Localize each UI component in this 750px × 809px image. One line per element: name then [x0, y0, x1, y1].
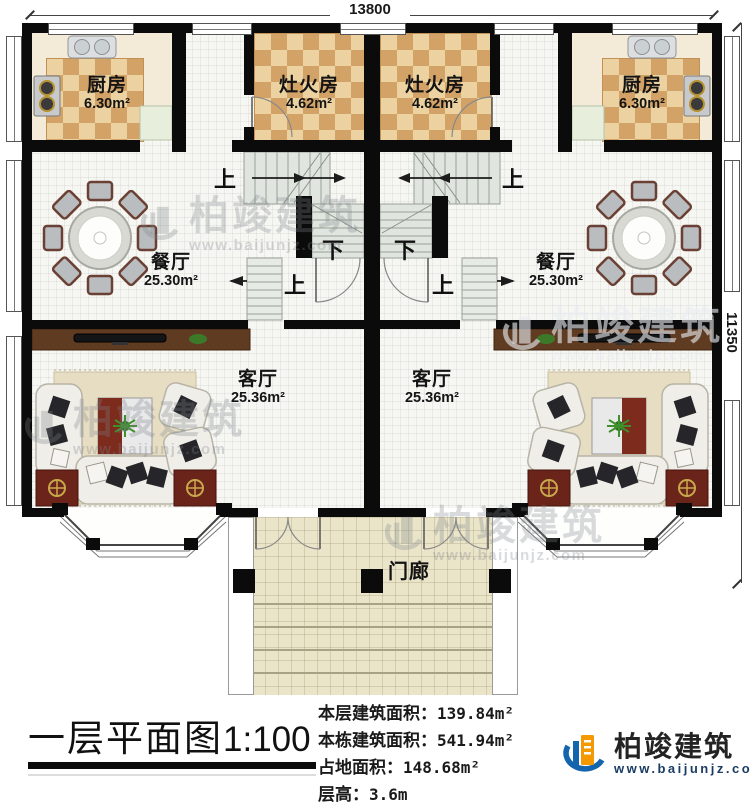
room-label-dining-left: 餐厅 25.30m²: [116, 253, 226, 290]
title-rule-light: [28, 774, 316, 776]
room-name: 餐厅: [501, 253, 611, 274]
room-area: 25.30m²: [116, 274, 226, 290]
room-name: 灶火房: [254, 76, 364, 97]
company-logo: 柏竣建筑 www.baijunjz.com: [560, 728, 750, 780]
room-label-stoveroom-right: 灶火房 4.62m²: [380, 76, 490, 113]
wall-segment: [380, 320, 460, 329]
wall-segment: [496, 320, 722, 329]
window-band: [48, 23, 134, 35]
company-name: 柏竣建筑: [614, 732, 750, 761]
title-block: 一层平面图1:100 本层建筑面积：139.84m² 本栋建筑面积：541.94…: [0, 700, 750, 809]
plan-stats: 本层建筑面积：139.84m² 本栋建筑面积：541.94m² 占地面积：148…: [318, 700, 514, 808]
room-label-living-right: 客厅 25.36m²: [377, 370, 487, 407]
stat-row: 本栋建筑面积：541.94m²: [318, 727, 514, 754]
stair-up-label: 上: [502, 162, 524, 194]
company-logo-text: 柏竣建筑 www.baijunjz.com: [614, 732, 750, 776]
room-area: 6.30m²: [587, 97, 697, 113]
wall-segment: [220, 508, 258, 517]
stat-value: 3.6m: [369, 785, 408, 804]
room-label-living-left: 客厅 25.36m²: [203, 370, 313, 407]
floor-plan-page: 13800 11350: [0, 0, 750, 809]
stair-up-label: 上: [284, 268, 306, 300]
stair-down-label: 下: [322, 233, 344, 265]
room-label-dining-right: 餐厅 25.30m²: [501, 253, 611, 290]
wall-segment: [232, 140, 364, 152]
stat-row: 本层建筑面积：139.84m²: [318, 700, 514, 727]
wall-segment: [432, 196, 448, 258]
wall-segment: [22, 23, 32, 517]
wall-segment: [558, 23, 572, 152]
room-name: 厨房: [52, 76, 162, 97]
wall-segment: [604, 140, 722, 152]
dimension-width-label: 13800: [330, 1, 410, 18]
room-name: 灶火房: [380, 76, 490, 97]
dimension-height-label: 11350: [723, 312, 740, 353]
wall-segment: [284, 320, 364, 329]
unit-left-furniture: [32, 36, 364, 557]
room-name: 厨房: [587, 76, 697, 97]
plan-title-text: 一层平面图: [28, 718, 223, 759]
stair-up-label: 上: [432, 268, 454, 300]
room-area: 4.62m²: [380, 97, 490, 113]
stat-value: 148.68m²: [403, 758, 480, 777]
wall-segment: [172, 23, 186, 152]
stat-label: 层高：: [318, 785, 369, 804]
wall-segment: [680, 508, 722, 517]
wall-segment: [712, 23, 722, 517]
room-name: 客厅: [377, 370, 487, 391]
plan-title: 一层平面图1:100: [28, 708, 311, 762]
stair-down-label: 下: [394, 233, 416, 265]
stair-up-label: 上: [214, 162, 236, 194]
wall-segment: [296, 196, 312, 258]
porch-pillar: [489, 569, 511, 593]
room-label-kitchen-right: 厨房 6.30m²: [587, 76, 697, 113]
wall-segment: [318, 508, 426, 517]
stat-row: 层高：3.6m: [318, 781, 514, 808]
stat-value: 541.94m²: [437, 731, 514, 750]
stat-label: 占地面积：: [318, 758, 403, 777]
wall-segment: [22, 140, 140, 152]
window-band: [6, 160, 22, 312]
wall-segment: [486, 508, 524, 517]
dimension-line-right: [741, 23, 742, 583]
wall-segment: [380, 140, 512, 152]
stat-value: 139.84m²: [437, 704, 514, 723]
window-band: [6, 36, 22, 142]
room-label-kitchen-left: 厨房 6.30m²: [52, 76, 162, 113]
title-rule: [28, 762, 316, 769]
window-band: [612, 23, 698, 35]
room-name: 餐厅: [116, 253, 226, 274]
room-label-stoveroom-left: 灶火房 4.62m²: [254, 76, 364, 113]
room-area: 25.36m²: [377, 391, 487, 407]
room-area: 25.36m²: [203, 391, 313, 407]
company-url: www.baijunjz.com: [614, 761, 750, 776]
window-band: [724, 36, 740, 142]
window-band: [340, 23, 406, 35]
wall-segment: [22, 320, 248, 329]
room-area: 4.62m²: [254, 97, 364, 113]
window-band: [724, 160, 740, 292]
stat-label: 本层建筑面积：: [318, 704, 437, 723]
unit-right-furniture: [380, 36, 712, 557]
wall-segment-center: [364, 23, 380, 517]
window-band: [724, 400, 740, 506]
porch-pillar: [233, 569, 255, 593]
stat-row: 占地面积：148.68m²: [318, 754, 514, 781]
room-name: 门廊: [354, 561, 464, 583]
plan-scale: 1:100: [223, 720, 311, 759]
room-label-porch: 门廊: [354, 561, 464, 583]
room-name: 客厅: [203, 370, 313, 391]
room-area: 6.30m²: [52, 97, 162, 113]
company-logo-icon: [560, 728, 606, 780]
wall-segment: [22, 508, 64, 517]
stat-label: 本栋建筑面积：: [318, 731, 437, 750]
room-area: 25.30m²: [501, 274, 611, 290]
window-band: [494, 23, 554, 35]
window-band: [6, 336, 22, 506]
window-band: [192, 23, 252, 35]
